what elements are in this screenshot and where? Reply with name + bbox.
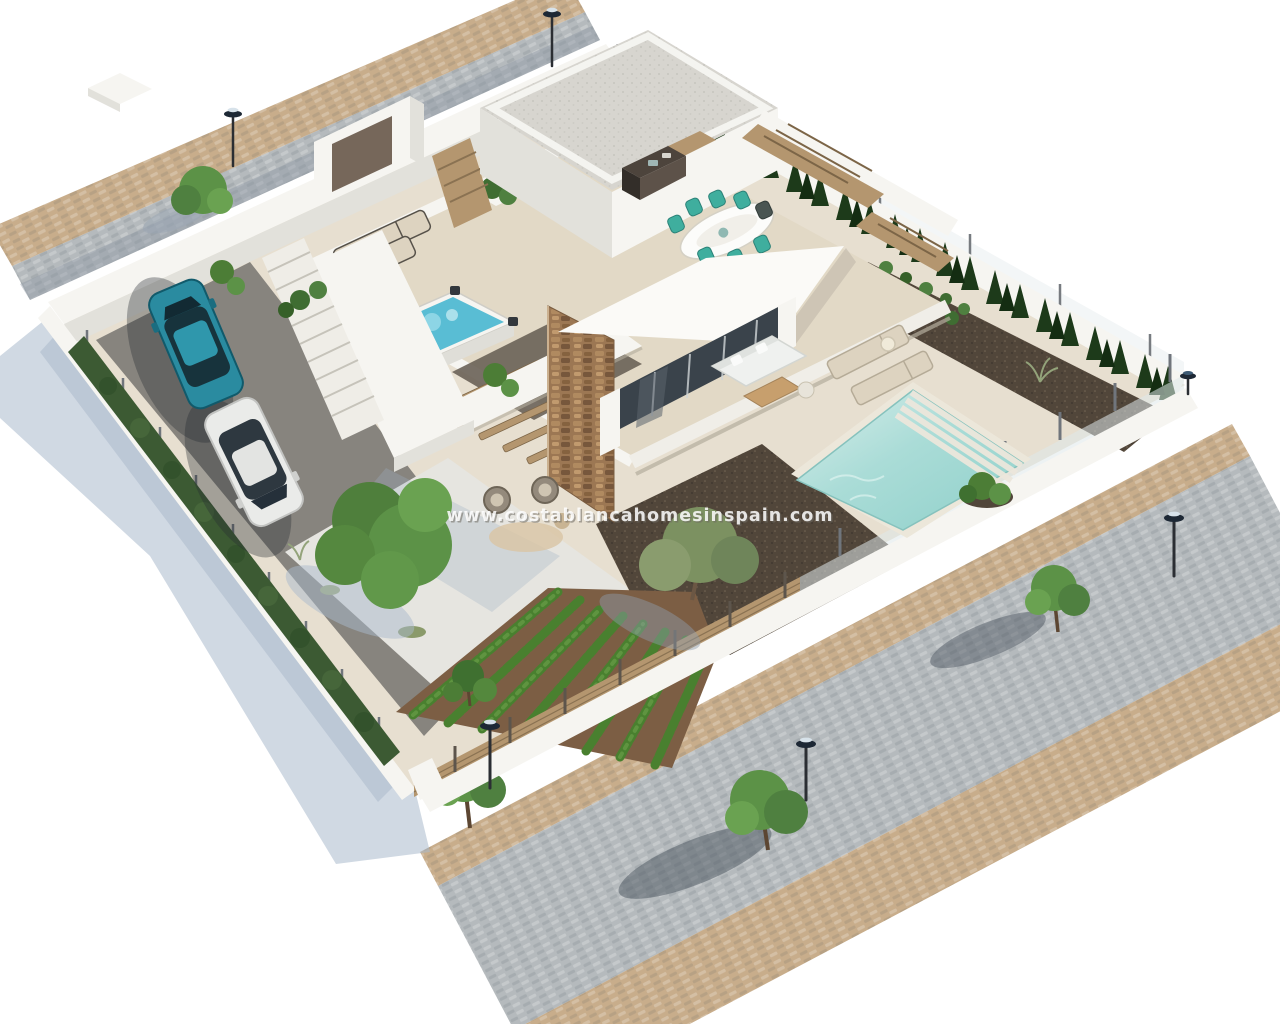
pouf xyxy=(798,382,814,398)
villa-render: www.costablancahomesinspain.com www.cost… xyxy=(0,0,1280,1024)
watermark: www.costablancahomesinspain.com www.cost… xyxy=(447,506,835,528)
watermark-text: www.costablancahomesinspain.com xyxy=(447,506,834,526)
utility-box xyxy=(88,73,152,112)
pool-side-table xyxy=(881,337,895,351)
render-canvas: www.costablancahomesinspain.com www.cost… xyxy=(0,0,1280,1024)
facade-pier xyxy=(600,388,620,456)
